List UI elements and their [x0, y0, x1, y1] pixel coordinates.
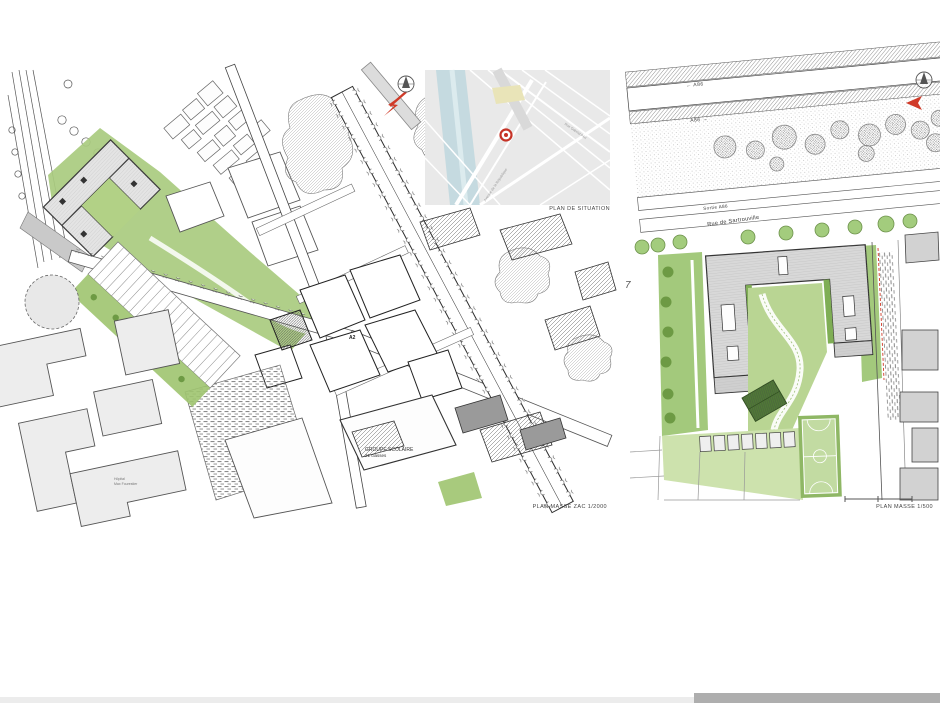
caption-plan-situation: PLAN DE SITUATION: [510, 206, 610, 212]
caption-plan-masse-500: PLAN MASSE 1/500: [830, 504, 933, 510]
left-plan-compass-icon: [398, 76, 414, 92]
label-hopital-1: Hôpital: [114, 477, 125, 481]
label-block-a2: A2: [349, 335, 355, 341]
map-location-marker: [501, 130, 512, 141]
document-page: PLAN DE SITUATION PLAN MASSE ZAC 1/2000 …: [0, 0, 940, 703]
east-buildings: [900, 232, 939, 500]
right-plan-compass-icon: [916, 72, 932, 88]
west-green-strip: [658, 252, 708, 436]
a86-corridor: [625, 41, 940, 232]
right-plan-500: [625, 41, 940, 502]
horizontal-scrollbar-thumb[interactable]: [694, 693, 940, 703]
hospital-round-grove: [25, 275, 79, 329]
green-patch-south: [438, 472, 482, 506]
label-hopital-2: Max Fourestier: [114, 482, 137, 486]
stray-page-number: 7: [625, 280, 631, 291]
plans-artwork: [0, 0, 940, 703]
basketball-court: [798, 415, 842, 498]
label-groupe-scolaire-sub: 21 classes: [365, 453, 386, 458]
caption-plan-masse-zac: PLAN MASSE ZAC 1/2000: [489, 504, 607, 510]
